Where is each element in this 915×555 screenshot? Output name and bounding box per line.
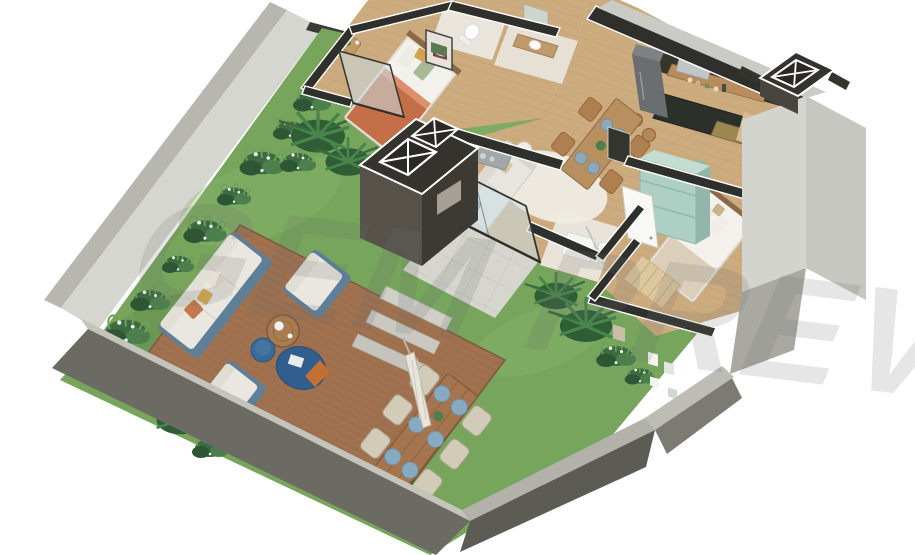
jar bbox=[688, 78, 693, 83]
dish bbox=[480, 153, 486, 159]
jar bbox=[696, 81, 701, 86]
render-canvas: GEM PREVI bbox=[0, 0, 915, 555]
jar bbox=[714, 87, 719, 92]
dish bbox=[489, 156, 494, 161]
bottle bbox=[722, 84, 726, 92]
shaft2-flank bbox=[828, 72, 850, 90]
plant-pot bbox=[705, 84, 710, 89]
floor-plan-render: GEM PREVI bbox=[0, 0, 915, 555]
